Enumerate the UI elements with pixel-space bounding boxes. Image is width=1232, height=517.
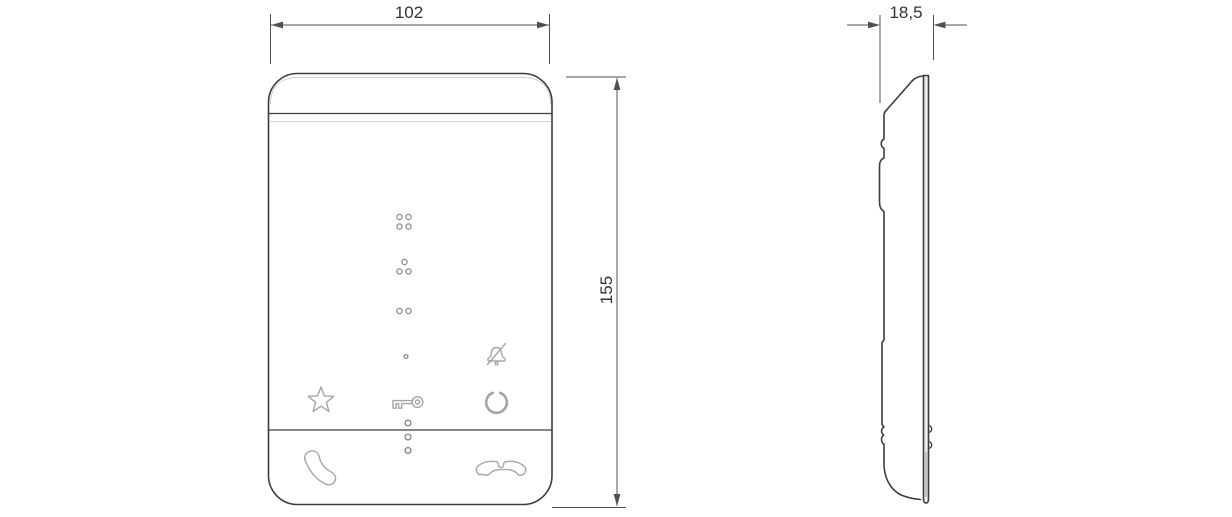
side-front-profile (880, 76, 923, 500)
key-icon (393, 397, 423, 409)
side-view (880, 76, 932, 504)
bell-mute-icon (488, 344, 506, 365)
braille-dots-group-1 (397, 214, 411, 229)
dim-width-arrow-right (537, 22, 549, 29)
phone-handset-icon (305, 451, 336, 485)
front-view (269, 74, 553, 505)
dim-depth-arrow-left (868, 22, 880, 29)
dimension-width: 102 (271, 3, 550, 64)
braille-dot-single (404, 355, 408, 359)
ring-icon (486, 393, 507, 413)
intercom-dimension-drawing: 102 155 18,5 (0, 0, 1232, 517)
phone-hangup-icon (476, 461, 525, 475)
dim-height-arrow-bottom (614, 494, 621, 506)
dim-width-arrow-left (271, 22, 283, 29)
dim-height-arrow-top (614, 78, 621, 90)
braille-dots-group-3 (397, 308, 411, 313)
dimension-height: 155 (552, 77, 626, 508)
star-icon (308, 387, 334, 411)
braille-dots-group-2 (397, 259, 411, 274)
dimension-depth: 18,5 (847, 3, 967, 103)
dim-depth-label: 18,5 (889, 3, 922, 22)
dim-height-label: 155 (597, 276, 616, 304)
dim-width-label: 102 (395, 3, 423, 22)
technical-drawing-canvas: 102 155 18,5 (0, 0, 1232, 517)
led-indicator-dots (405, 420, 411, 453)
front-top-inner-edge (271, 78, 551, 105)
front-outline (269, 74, 553, 505)
dim-depth-arrow-right (934, 22, 946, 29)
